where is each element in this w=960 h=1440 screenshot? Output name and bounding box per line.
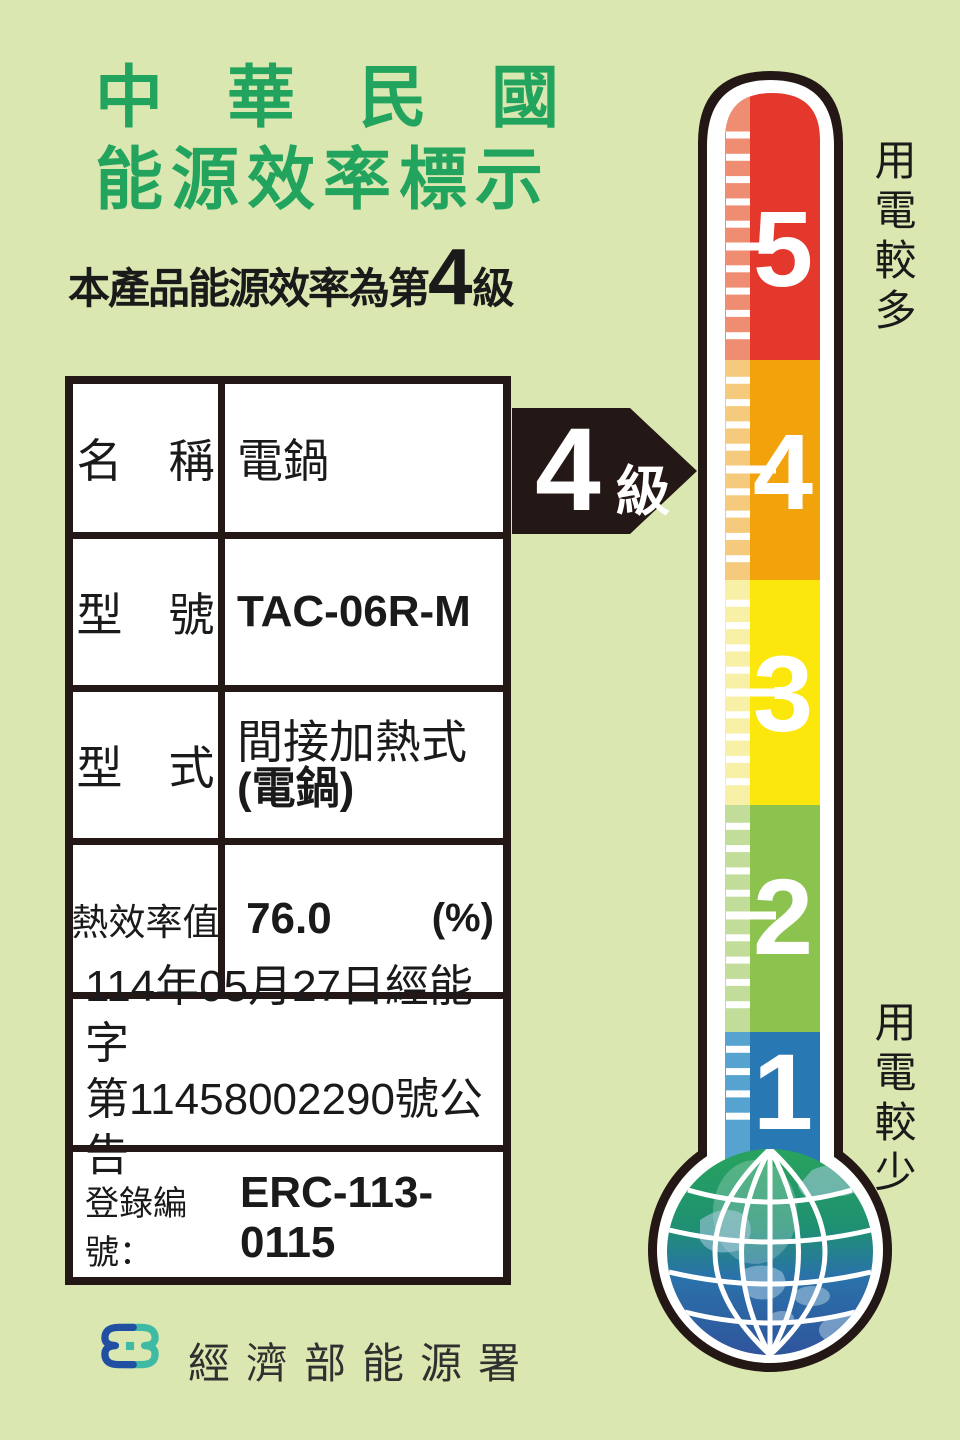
scale-number-2: 2 [753,856,813,977]
label-more-power: 用電較多 [862,138,923,338]
scale-number-5: 5 [753,188,813,309]
agency-name: 經濟部能源署 [188,1330,536,1391]
scale-number-1: 1 [753,1031,813,1152]
scale-number-4: 4 [753,411,813,532]
label-less-power: 用電較少 [862,1000,923,1200]
agency-logo [96,1320,164,1372]
thermometer: 5 4 3 2 1 [0,0,960,1440]
energy-label: { "page": { "bg_color": "#dbe7b0" }, "he… [0,0,960,1440]
agency-logo-dot [126,1342,134,1350]
globe [667,1149,873,1355]
scale-number-3: 3 [753,633,813,754]
